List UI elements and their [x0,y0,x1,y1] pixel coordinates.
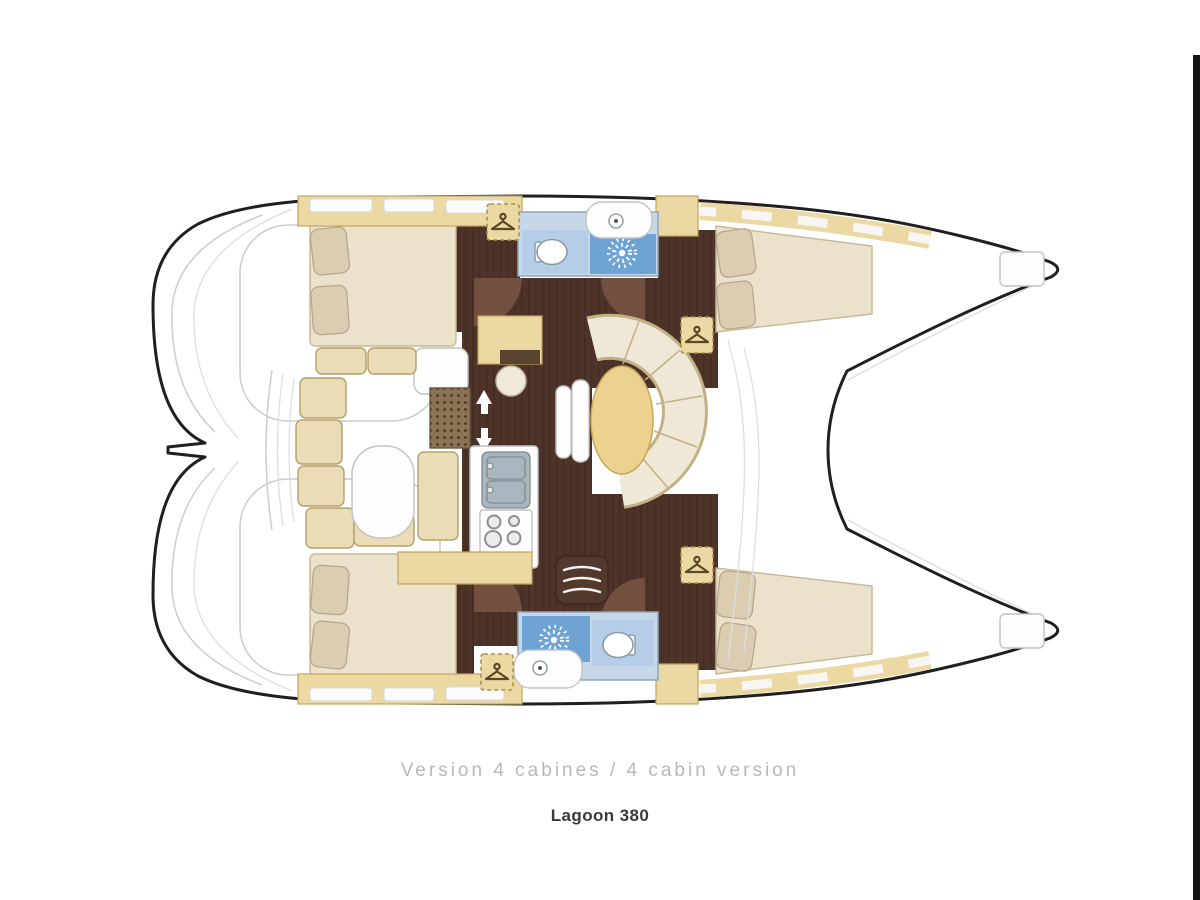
cockpit-table [352,446,414,538]
cabin-aft-top [310,222,456,346]
aft-steps [556,556,608,604]
bench [556,386,571,458]
bathroom-bottom [514,612,658,688]
sink-faucet [487,487,493,493]
faucet-icon [533,661,547,675]
right-edge-bar [1193,55,1200,900]
cockpit-seat [414,348,468,394]
pillow [310,285,349,335]
pillow [716,280,757,330]
galley-return-counter [398,552,532,584]
wardrobe-hanger [481,654,513,690]
pillow [310,620,351,670]
toilet-icon [603,633,635,658]
faucet-icon [609,214,623,228]
toilet-icon [535,240,567,265]
pillow [310,565,349,615]
wardrobe-top [656,196,698,236]
pillow [310,226,351,276]
page: Version 4 cabines / 4 cabin version Lago… [0,0,1200,900]
chart-table-drawer [500,350,540,364]
caption-model: Lagoon 380 [0,806,1200,826]
companionway-mat [430,388,470,448]
nav-stool [496,366,526,396]
wardrobe-hanger [681,317,713,353]
pillow [715,228,757,279]
sink-faucet [487,463,493,469]
wardrobe-hanger [487,204,519,240]
bow-locker-top [1000,252,1044,286]
sink-counter [514,650,582,688]
saloon-table [591,366,653,474]
bow-locker-bottom [1000,614,1044,648]
wardrobe-bottom [656,664,698,704]
bench [572,380,589,462]
bathroom-top [518,202,658,276]
pillow [715,622,757,673]
wardrobe-hanger [681,547,713,583]
caption-version: Version 4 cabines / 4 cabin version [0,760,1200,782]
